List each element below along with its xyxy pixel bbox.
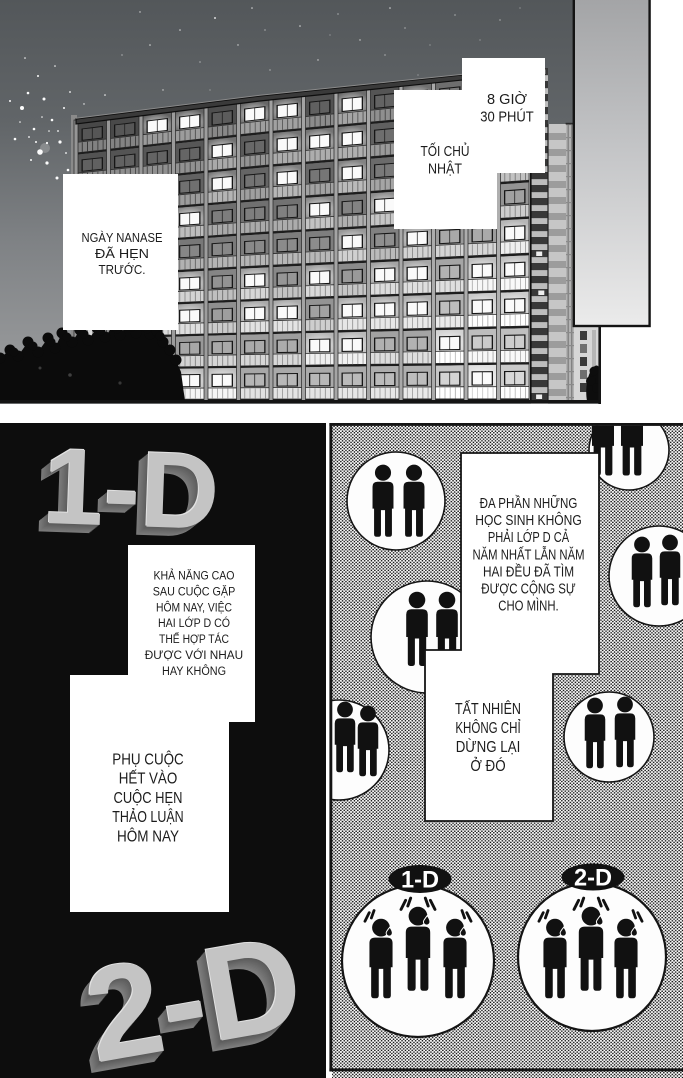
svg-text:THỂ HỢP TÁC: THỂ HỢP TÁC xyxy=(159,631,229,646)
svg-text:1-D: 1-D xyxy=(41,425,221,552)
svg-text:NĂM NHẤT LẪN NĂM: NĂM NHẤT LẪN NĂM xyxy=(473,546,585,563)
svg-text:NHẬT: NHẬT xyxy=(428,161,462,178)
svg-text:Ở ĐÓ: Ở ĐÓ xyxy=(470,757,505,775)
svg-text:SAU CUỘC GẶP: SAU CUỘC GẶP xyxy=(153,583,236,598)
svg-text:KHẢ NĂNG CAO: KHẢ NĂNG CAO xyxy=(154,568,235,583)
svg-text:CHO MÌNH.: CHO MÌNH. xyxy=(498,598,558,615)
svg-text:PHỤ CUỘC: PHỤ CUỘC xyxy=(112,752,183,769)
svg-text:HỌC SINH KHÔNG: HỌC SINH KHÔNG xyxy=(475,512,582,529)
svg-text:KHÔNG CHỈ: KHÔNG CHỈ xyxy=(455,720,520,737)
svg-text:NGÀY NANASE: NGÀY NANASE xyxy=(82,230,163,245)
svg-text:ĐA PHẦN NHỮNG: ĐA PHẦN NHỮNG xyxy=(480,495,578,512)
svg-text:8 GIỜ: 8 GIỜ xyxy=(487,91,527,108)
svg-text:TẤT NHIÊN: TẤT NHIÊN xyxy=(455,701,521,718)
svg-text:HÔM NAY, VIỆC: HÔM NAY, VIỆC xyxy=(156,599,232,614)
svg-text:HẾT VÀO: HẾT VÀO xyxy=(119,771,178,788)
svg-text:PHẢI LỚP D CẢ: PHẢI LỚP D CẢ xyxy=(488,529,569,546)
svg-text:DỪNG LẠI: DỪNG LẠI xyxy=(456,739,521,756)
svg-text:1-D: 1-D xyxy=(401,867,439,894)
svg-text:ĐÃ HẸN: ĐÃ HẸN xyxy=(95,247,149,261)
svg-text:30 PHÚT: 30 PHÚT xyxy=(480,108,534,125)
svg-text:ĐƯỢC VỚI NHAU: ĐƯỢC VỚI NHAU xyxy=(145,647,243,662)
svg-text:TỐI CHỦ: TỐI CHỦ xyxy=(421,142,470,160)
svg-text:ĐƯỢC CỘNG SỰ: ĐƯỢC CỘNG SỰ xyxy=(481,581,575,598)
svg-text:HAY KHÔNG: HAY KHÔNG xyxy=(162,663,226,678)
svg-text:TRƯỚC.: TRƯỚC. xyxy=(99,262,146,277)
svg-text:HÔM NAY: HÔM NAY xyxy=(117,828,179,845)
svg-text:CUỘC HẸN: CUỘC HẸN xyxy=(114,790,183,807)
svg-text:THẢO LUẬN: THẢO LUẬN xyxy=(112,809,183,826)
svg-text:HAI ĐỀU ĐÃ TÌM: HAI ĐỀU ĐÃ TÌM xyxy=(483,563,574,580)
svg-text:2-D: 2-D xyxy=(574,865,612,892)
svg-text:HAI LỚP D CÓ: HAI LỚP D CÓ xyxy=(158,615,230,630)
